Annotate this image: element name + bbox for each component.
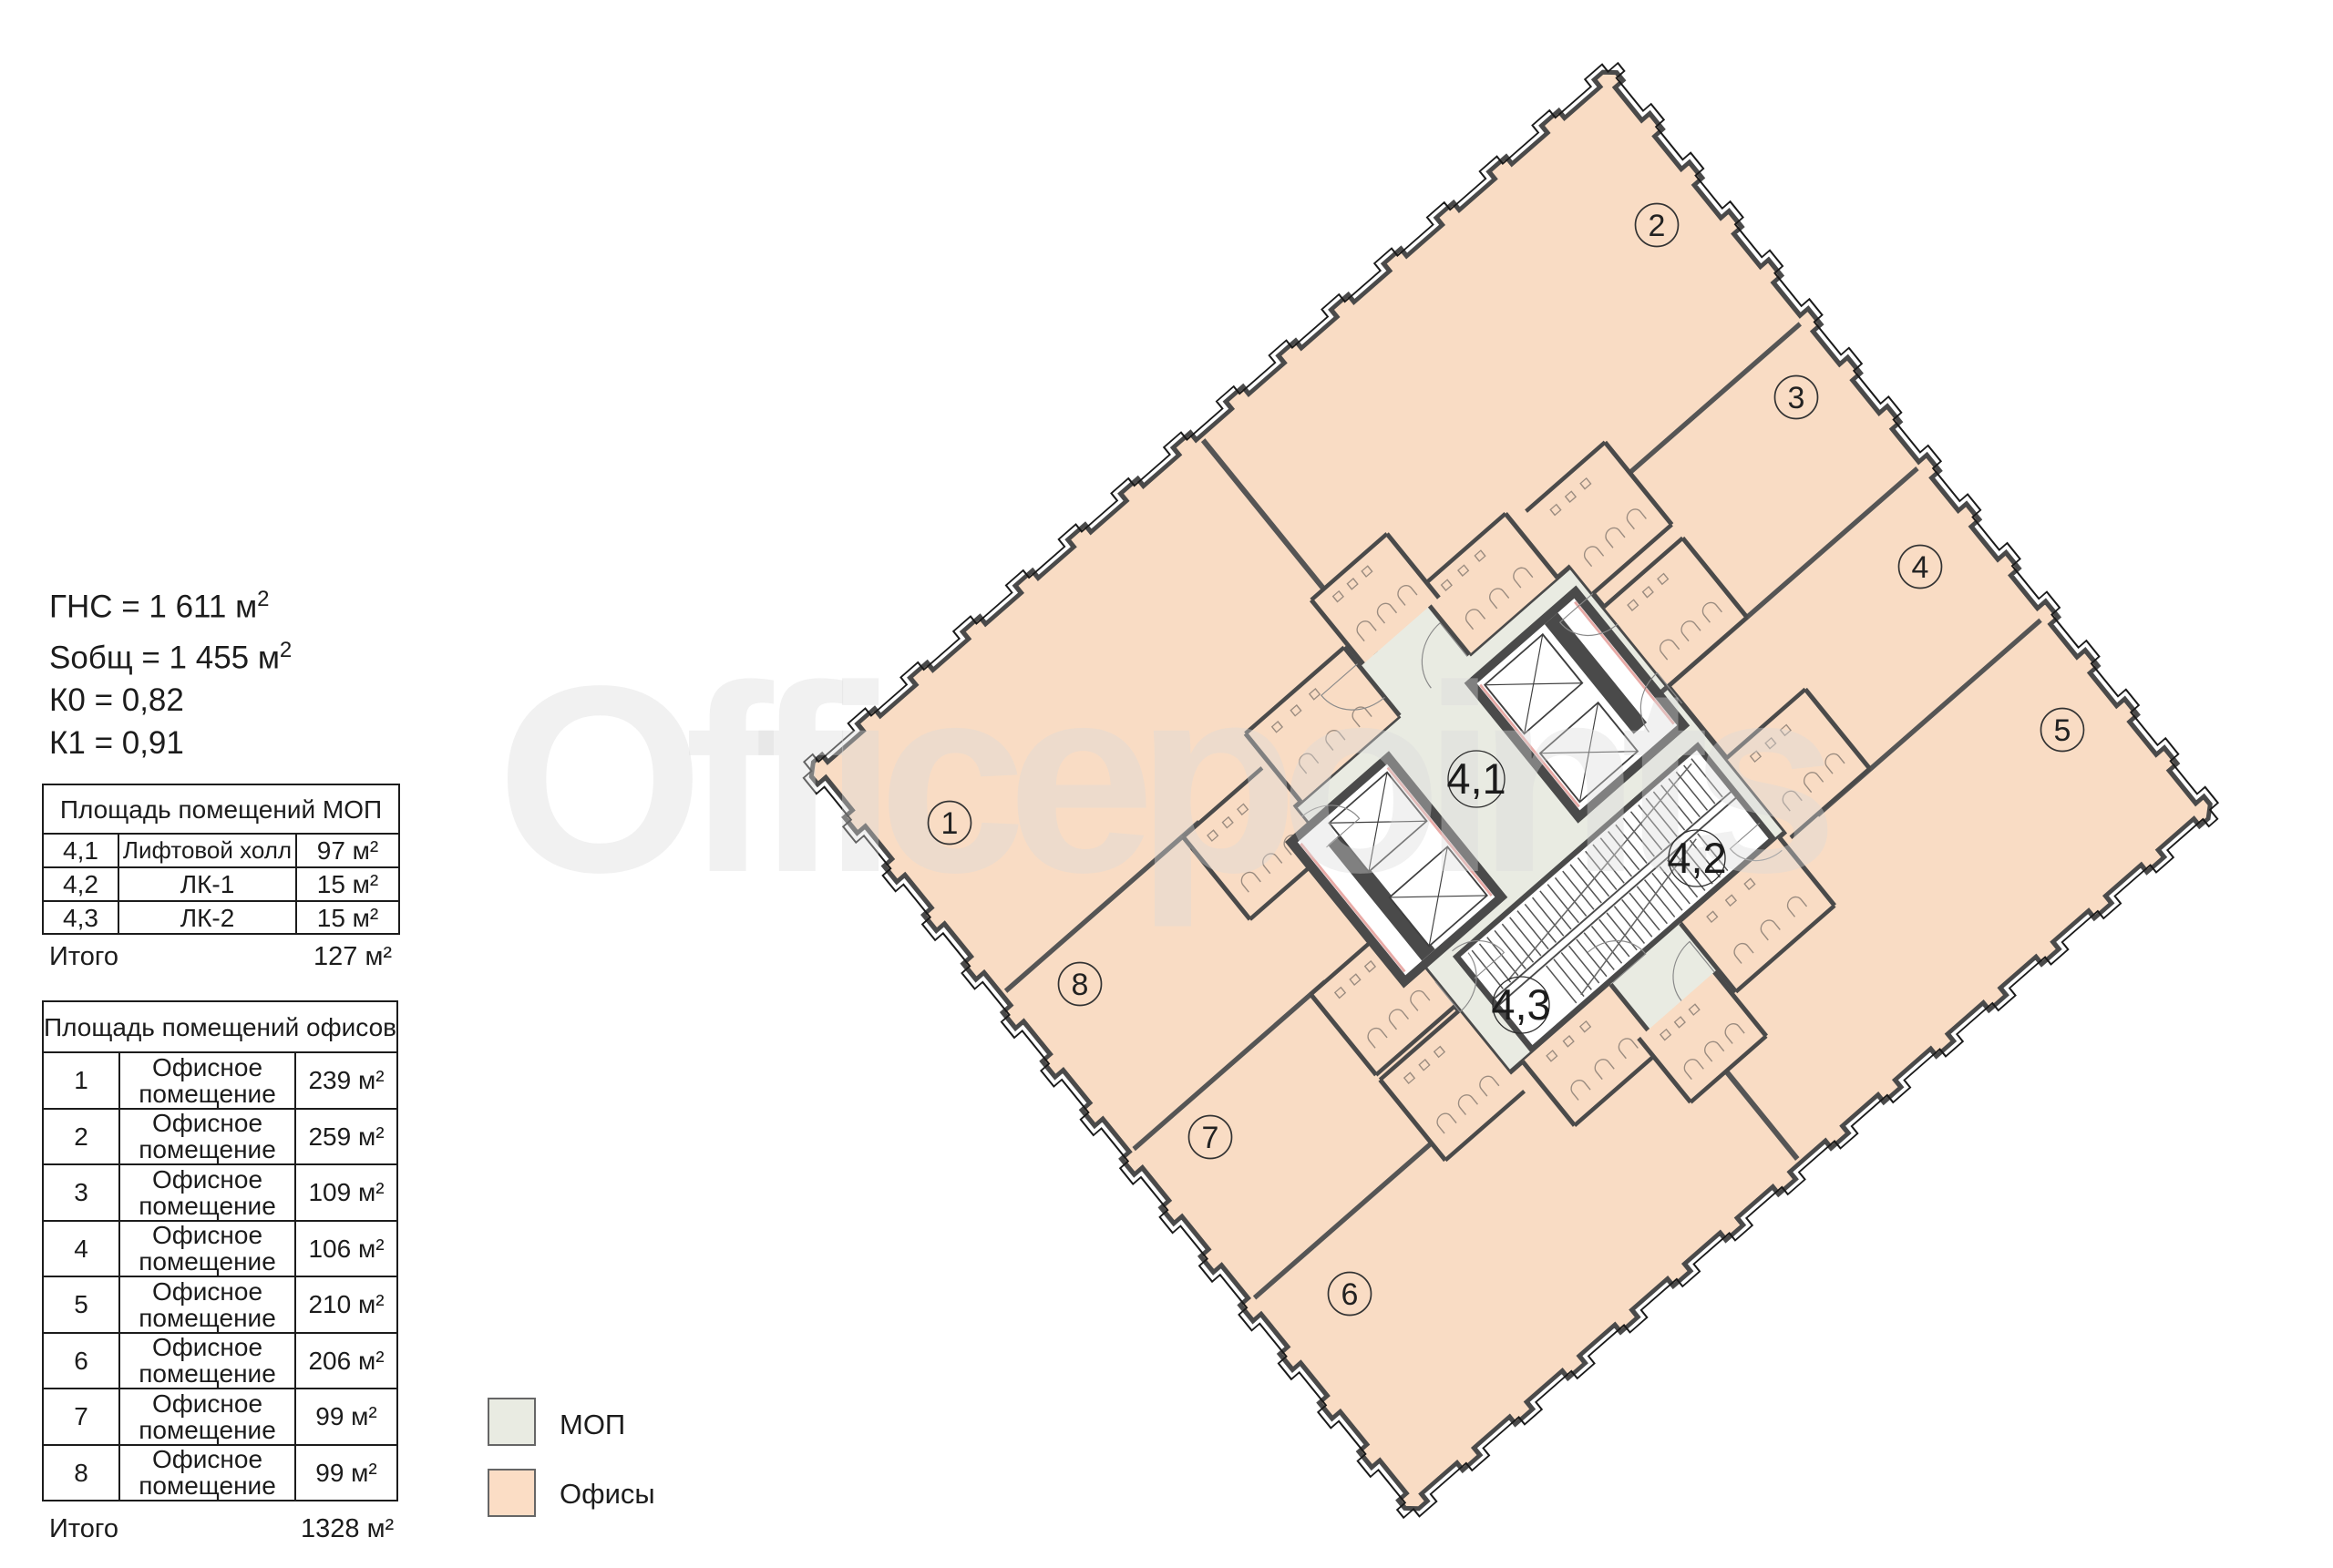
svg-text:4,2: 4,2 [1667, 834, 1726, 882]
svg-text:3: 3 [1788, 381, 1805, 415]
svg-text:2: 2 [1649, 209, 1666, 243]
svg-text:5: 5 [2054, 713, 2071, 748]
svg-text:6: 6 [1341, 1277, 1359, 1312]
svg-text:Officepoints: Officepoints [497, 630, 1828, 929]
svg-text:7: 7 [1202, 1121, 1219, 1155]
svg-text:4,3: 4,3 [1491, 980, 1550, 1029]
svg-text:4: 4 [1912, 550, 1929, 585]
svg-text:8: 8 [1072, 968, 1089, 1002]
svg-text:1: 1 [941, 806, 959, 841]
svg-text:4,1: 4,1 [1446, 754, 1506, 803]
